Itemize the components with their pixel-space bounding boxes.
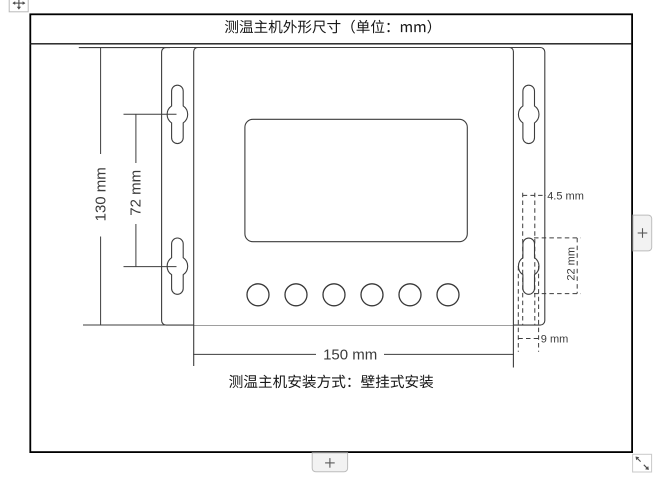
svg-text:150 mm: 150 mm <box>323 347 377 364</box>
svg-text:22 mm: 22 mm <box>565 247 577 281</box>
svg-text:9 mm: 9 mm <box>541 333 569 345</box>
svg-text:130 mm: 130 mm <box>92 167 109 221</box>
svg-text:4.5 mm: 4.5 mm <box>547 191 584 203</box>
svg-text:72 mm: 72 mm <box>128 170 145 216</box>
